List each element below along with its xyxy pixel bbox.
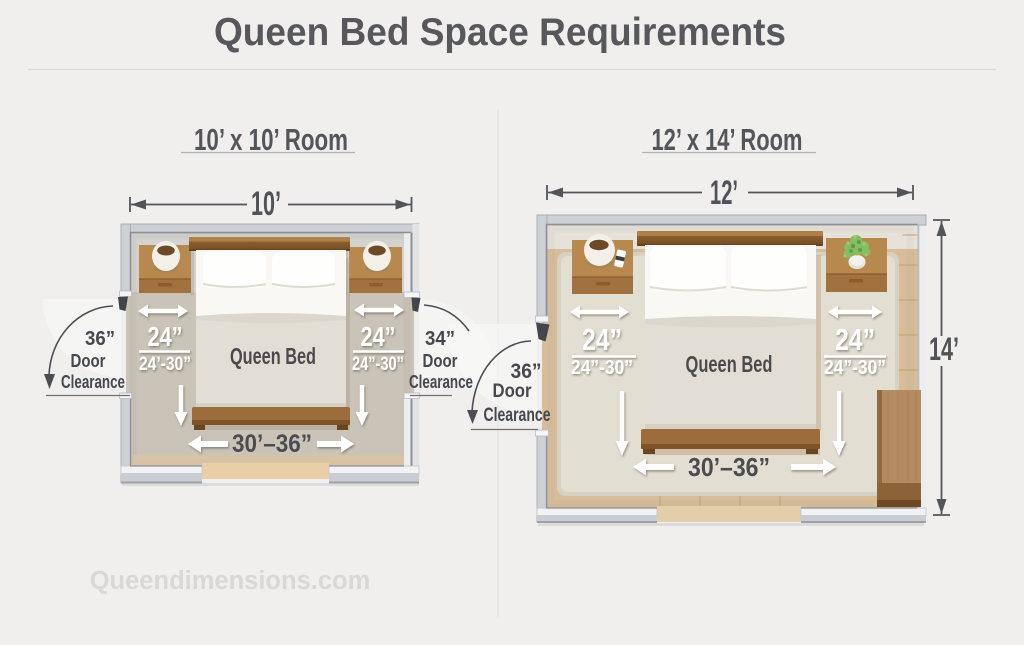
- svg-text:24”: 24”: [361, 321, 396, 352]
- svg-text:Door: Door: [493, 381, 533, 402]
- svg-text:12’: 12’: [710, 174, 738, 212]
- svg-text:10’ x 10’ Room: 10’ x 10’ Room: [194, 122, 348, 157]
- svg-text:Door: Door: [423, 351, 458, 371]
- svg-text:12’ x 14’ Room: 12’ x 14’ Room: [652, 122, 803, 157]
- svg-text:10’: 10’: [251, 185, 281, 223]
- svg-text:24”-30”: 24”-30”: [352, 354, 404, 375]
- svg-text:Queen Bed: Queen Bed: [230, 343, 316, 369]
- svg-text:Clearance: Clearance: [409, 372, 473, 392]
- svg-text:Queen Bed Space Requirements: Queen Bed Space Requirements: [214, 11, 786, 54]
- svg-text:24”-30”: 24”-30”: [571, 357, 633, 379]
- svg-text:30’–36”: 30’–36”: [232, 430, 312, 458]
- svg-text:14’: 14’: [929, 331, 959, 367]
- svg-text:Door: Door: [71, 351, 106, 371]
- svg-text:36”: 36”: [511, 360, 542, 383]
- svg-text:24’-30”: 24’-30”: [139, 354, 191, 375]
- svg-text:34”: 34”: [425, 328, 455, 350]
- svg-text:Queendimensions.com: Queendimensions.com: [90, 567, 371, 595]
- svg-text:24”: 24”: [582, 322, 622, 357]
- svg-text:Queen Bed: Queen Bed: [686, 351, 773, 377]
- svg-text:24”: 24”: [148, 321, 183, 352]
- svg-text:24”: 24”: [835, 322, 875, 357]
- svg-text:Clearance: Clearance: [61, 372, 125, 392]
- svg-text:24”-30”: 24”-30”: [824, 357, 886, 379]
- svg-text:30’–36”: 30’–36”: [688, 452, 770, 482]
- svg-text:Clearance: Clearance: [484, 405, 551, 426]
- svg-text:36”: 36”: [85, 328, 115, 350]
